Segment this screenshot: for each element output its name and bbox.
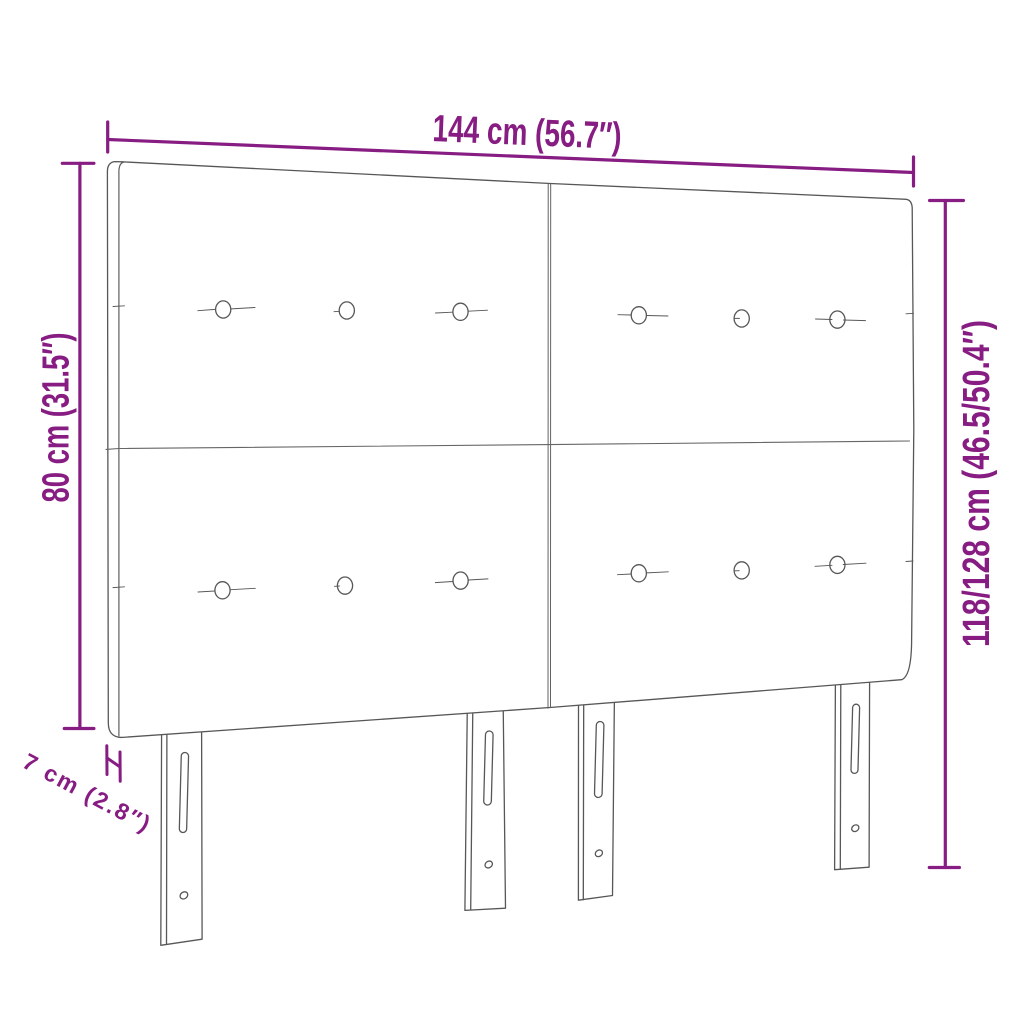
svg-text:80 cm (31.5″): 80 cm (31.5″) [36, 333, 78, 503]
svg-text:7 cm (2.8″): 7 cm (2.8″) [19, 748, 155, 837]
svg-text:118/128 cm (46.5/50.4″): 118/128 cm (46.5/50.4″) [956, 320, 998, 647]
svg-text:144 cm (56.7″): 144 cm (56.7″) [432, 108, 623, 158]
